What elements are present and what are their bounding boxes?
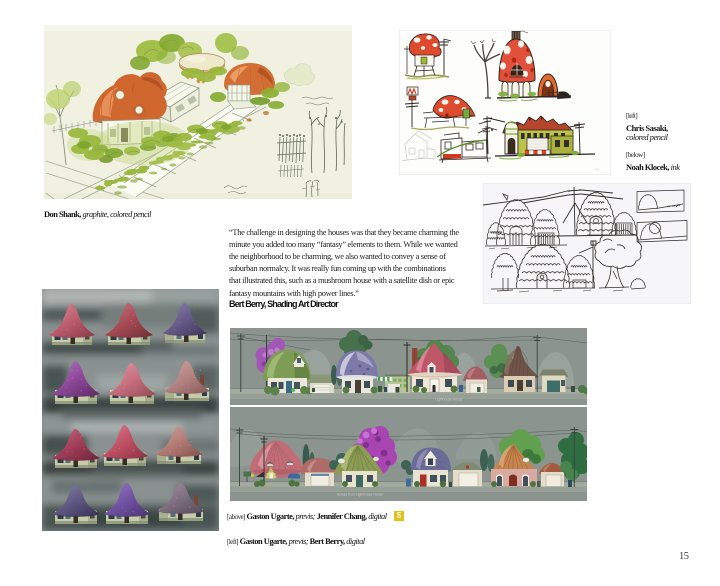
- svg-text:Lighthouse House: Lighthouse House: [435, 398, 462, 402]
- svg-text:c.s.: c.s.: [595, 167, 600, 171]
- svg-text:Across from Lighthouse House: Across from Lighthouse House: [337, 493, 383, 497]
